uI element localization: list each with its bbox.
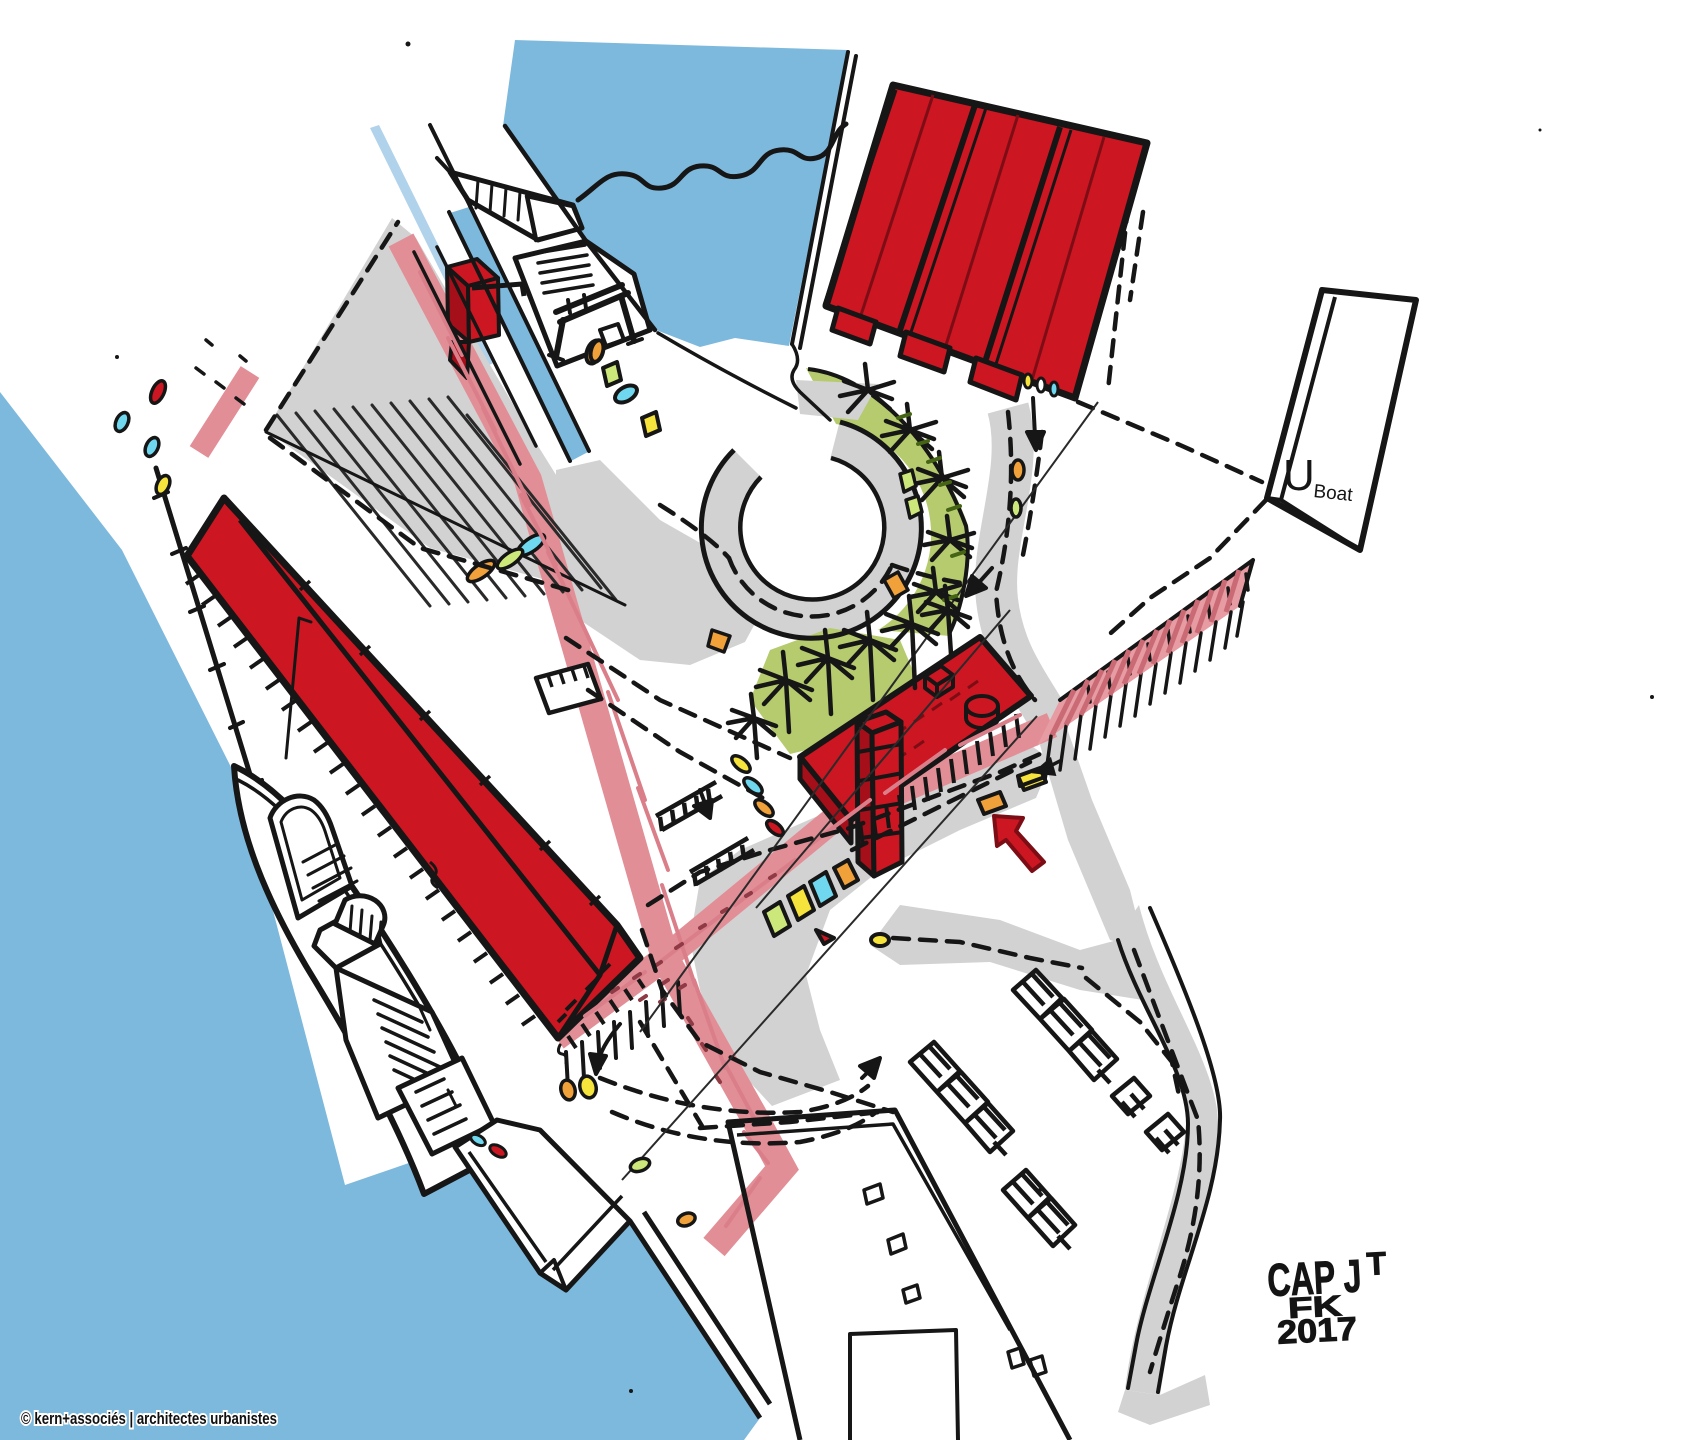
svg-text:U: U	[1283, 451, 1315, 500]
svg-text:2017: 2017	[1276, 1310, 1358, 1351]
svg-text:Boat: Boat	[1312, 481, 1354, 506]
svg-text:© kern+associés | architectes: © kern+associés | architectes urbanistes	[21, 1409, 277, 1428]
svg-text:T: T	[1366, 1245, 1388, 1282]
